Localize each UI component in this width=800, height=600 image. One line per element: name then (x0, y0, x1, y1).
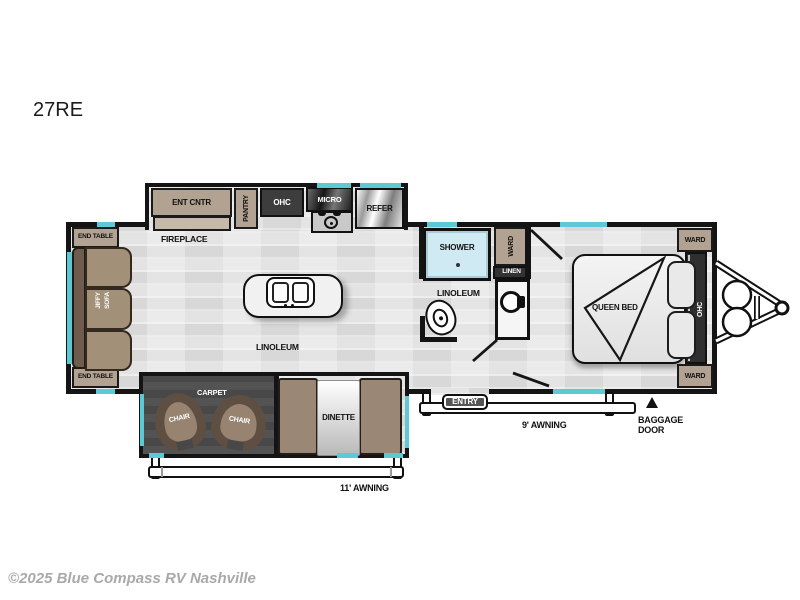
toilet-wall-h (420, 337, 457, 342)
ent-cntr-cabinet: ENT CNTR (151, 188, 232, 217)
window (427, 222, 457, 227)
ward-front-top: WARD (677, 228, 713, 252)
end-table-top: END TABLE (72, 227, 119, 248)
pantry-label: PANTRY (243, 195, 250, 222)
dinette-bench-left (278, 378, 318, 455)
window (67, 252, 72, 364)
awning-11 (148, 466, 404, 478)
window (384, 453, 403, 458)
refer-label: REFER (366, 205, 392, 213)
queen-bed-label: QUEEN BED (592, 304, 638, 312)
ward-front-bottom: WARD (677, 364, 713, 388)
sink-basin (272, 282, 289, 303)
entry-label: ENTRY (452, 398, 478, 406)
awning-11-label: 11' AWNING (340, 484, 389, 493)
window (96, 389, 115, 394)
lav-cabinet (495, 279, 530, 340)
hitch-icon (716, 263, 788, 341)
window (337, 453, 358, 458)
shower: SHOWER (423, 228, 491, 281)
propane-tank-icon (723, 281, 751, 309)
kitchen-bath-wall (419, 227, 424, 279)
microwave: MICRO (306, 187, 353, 212)
shower-drain (456, 263, 460, 267)
pantry-cabinet: PANTRY (234, 188, 258, 229)
propane-tank-icon (723, 308, 751, 336)
stove-icon (311, 211, 353, 233)
refrigerator: REFER (355, 188, 404, 229)
window (405, 396, 409, 448)
bath-bedroom-wall (525, 227, 531, 279)
ohc-kitchen-label: OHC (273, 199, 290, 207)
ent-cntr-label: ENT CNTR (172, 199, 211, 207)
dinette-bench-right (359, 378, 402, 455)
window (317, 183, 351, 188)
entry-badge: ENTRY (442, 394, 488, 410)
sink-basin (292, 282, 309, 303)
ohc-kitchen-cabinet: OHC (260, 188, 304, 217)
carpet-label: CARPET (197, 389, 227, 397)
micro-label: MICRO (318, 196, 342, 204)
linoleum-label-main: LINOLEUM (256, 343, 299, 352)
pillow (667, 311, 696, 359)
window (149, 453, 164, 458)
island-sink-icon (266, 277, 315, 308)
window (97, 222, 115, 227)
window (553, 389, 605, 394)
dinette-label-wrap: DINETTE (317, 413, 360, 423)
shower-label: SHOWER (440, 244, 475, 252)
jiffy-sofa-label: JIFFY SOFA (96, 292, 111, 309)
sofa-back (72, 247, 86, 369)
floorplan-title: 27RE (33, 99, 83, 122)
ohc-bedroom-label: OHC (695, 286, 706, 332)
copyright-watermark: ©2025 Blue Compass RV Nashville (8, 570, 256, 587)
sofa-cushion (85, 247, 132, 288)
ward-bath-cabinet: WARD (494, 227, 528, 266)
linoleum-label-bath: LINOLEUM (437, 289, 480, 298)
baggage-door-label: BAGGAGE DOOR (638, 416, 683, 435)
fireplace-hearth (153, 216, 231, 231)
hitch-coupler-icon (776, 302, 788, 314)
pillow (667, 261, 696, 309)
awning-9-label: 9' AWNING (522, 421, 567, 430)
sofa-cushion (85, 330, 132, 371)
window (560, 222, 607, 227)
dinette-label: DINETTE (322, 414, 355, 422)
fireplace-label: FIREPLACE (161, 235, 207, 244)
window (140, 394, 144, 446)
window (360, 183, 401, 188)
baggage-door-icon (646, 397, 658, 408)
